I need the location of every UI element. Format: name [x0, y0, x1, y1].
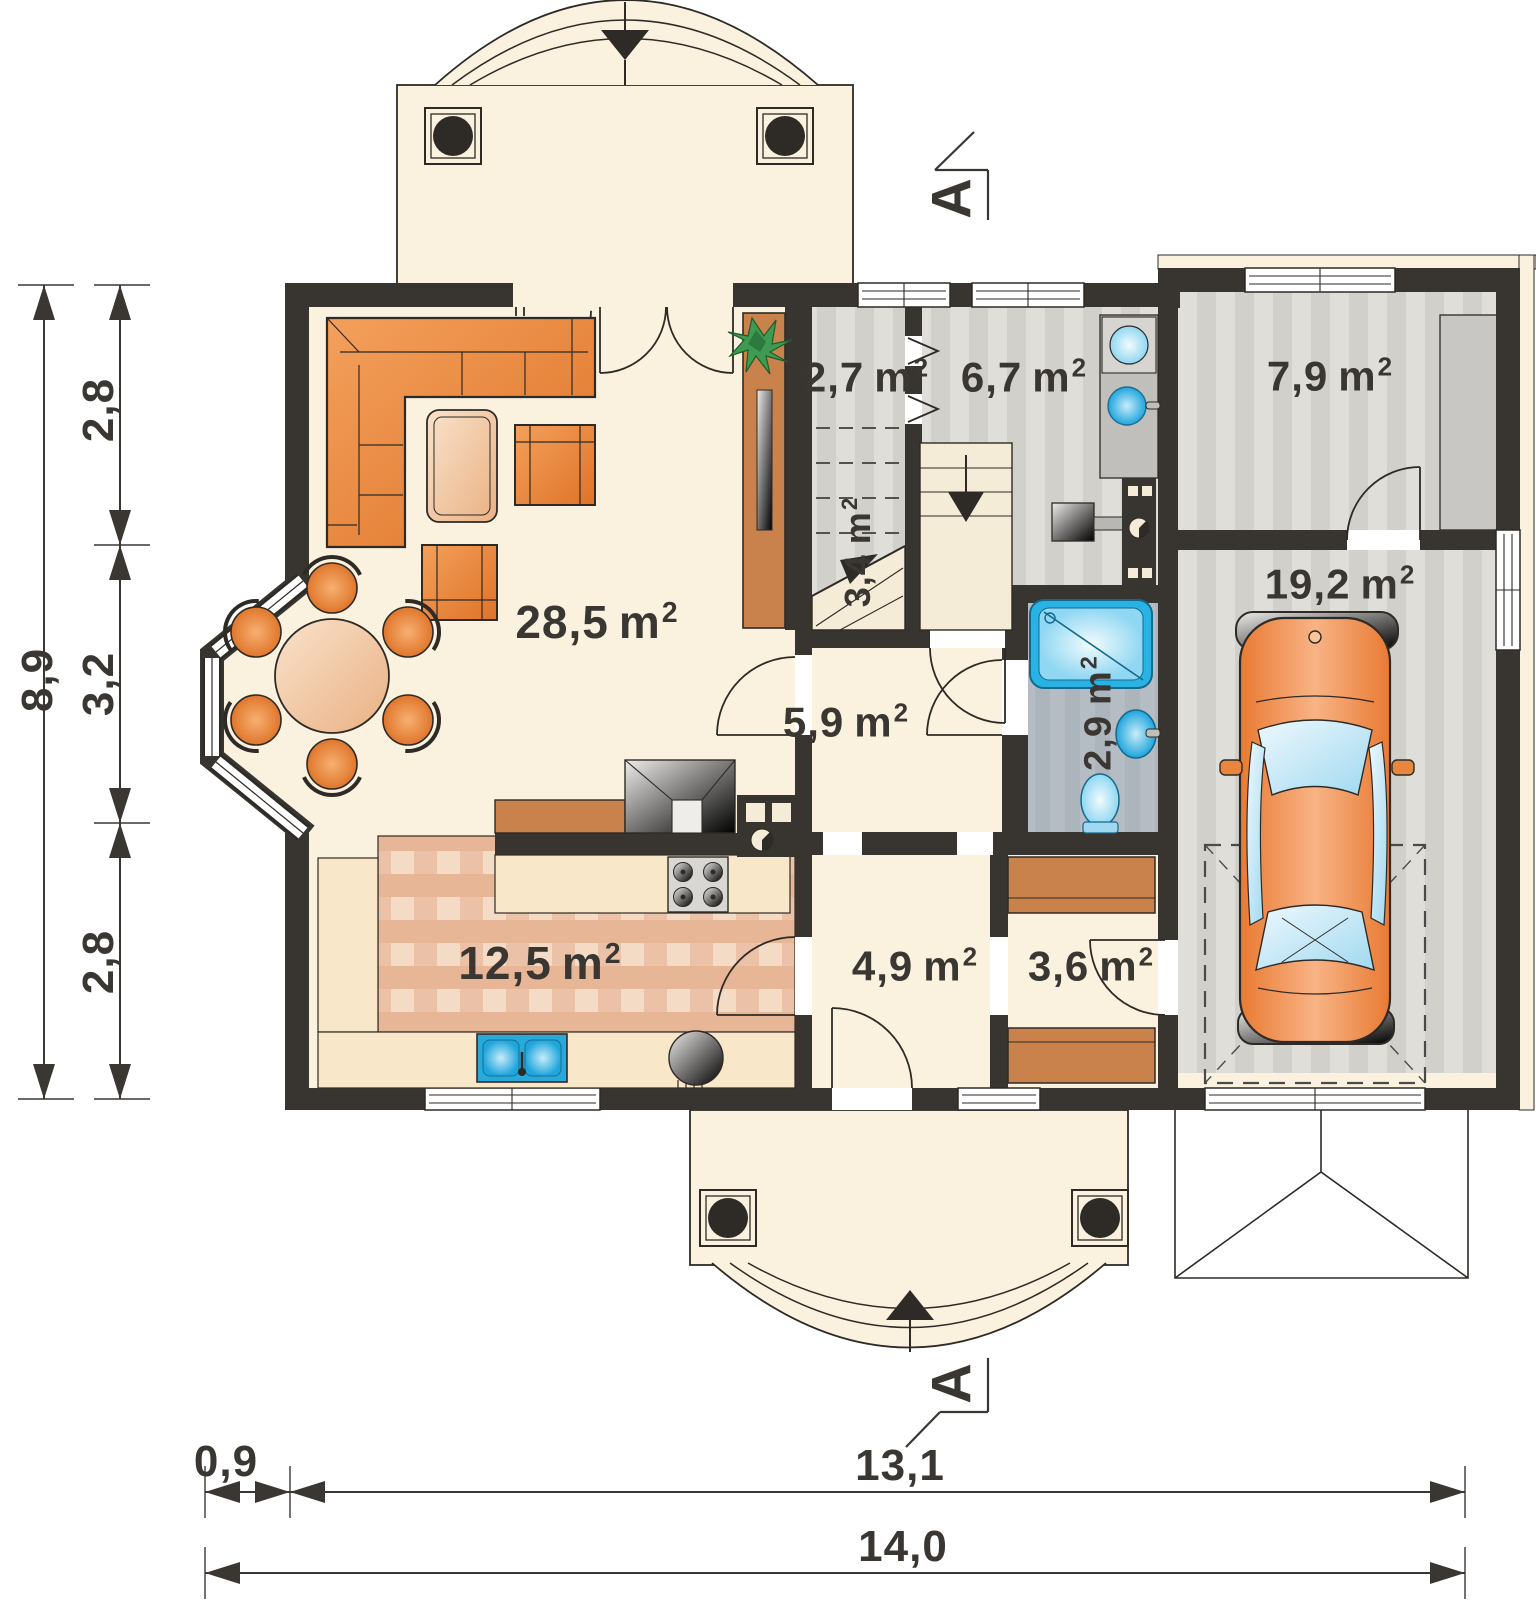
dimension-bottom-main: 13,1 — [855, 1441, 945, 1491]
garage-canopy-outline — [1175, 1110, 1468, 1278]
room-label-wardrobe: 3,6m2 — [1028, 942, 1154, 991]
armchair — [422, 545, 497, 620]
extractor-hood — [625, 760, 735, 833]
bottom-porch — [690, 1110, 1128, 1352]
porch-column — [757, 108, 813, 164]
floor-plan-drawing — [0, 0, 1536, 1600]
window — [1496, 530, 1520, 650]
room-label-hall-lower: 4,9m2 — [852, 942, 978, 991]
counter-left — [318, 858, 378, 1032]
chimney — [1122, 478, 1156, 590]
room-label-bathroom: 2,9m2 — [1076, 655, 1121, 771]
section-marker-bottom: A — [919, 1362, 984, 1403]
toilet — [1081, 774, 1119, 833]
storage-shelf — [1440, 315, 1498, 530]
dimension-left-total: 8,9 — [13, 648, 63, 712]
dimension-left-segment-bottom: 2,8 — [74, 930, 124, 994]
room-label-utility: 6,7m2 — [961, 353, 1087, 402]
room-label-kitchen: 12,5m2 — [458, 936, 621, 990]
window — [1245, 268, 1395, 292]
dimension-left-segment-top: 2,8 — [74, 378, 124, 442]
window — [425, 1088, 600, 1110]
room-label-hall: 5,9m2 — [783, 698, 909, 747]
car — [1220, 612, 1414, 1044]
section-marker-top: A — [919, 177, 984, 218]
dimension-bottom-offset: 0,9 — [194, 1437, 258, 1487]
coffee-table — [427, 410, 497, 522]
garage-door — [1205, 1088, 1425, 1110]
room-label-garage: 19,2m2 — [1265, 560, 1416, 609]
top-porch — [397, 0, 853, 285]
window — [858, 283, 950, 307]
window — [972, 283, 1084, 307]
chimney — [737, 795, 805, 857]
gas-stove — [668, 857, 728, 912]
armchair — [515, 425, 595, 505]
room-label-living: 28,5m2 — [515, 595, 678, 649]
floor-plan-canvas: 28,5m2 12,5m2 5,9m2 4,9m2 3,6m2 2,7m2 6,… — [0, 0, 1536, 1600]
room-label-stairs: 3,4m2 — [837, 497, 879, 607]
porch-column — [425, 108, 481, 164]
counter-top — [495, 855, 790, 913]
kitchen-sink — [477, 1034, 567, 1082]
dimension-left-segment-mid: 3,2 — [74, 652, 124, 716]
sideboard — [495, 800, 625, 833]
room-label-storage: 7,9m2 — [1267, 352, 1393, 401]
utility-sink — [1108, 387, 1146, 425]
porch-column — [1072, 1190, 1128, 1246]
porch-column — [700, 1190, 756, 1246]
room-label-stair-hall: 2,7m2 — [803, 353, 929, 402]
window — [958, 1088, 1040, 1110]
dimension-bottom-total: 14,0 — [858, 1522, 948, 1572]
